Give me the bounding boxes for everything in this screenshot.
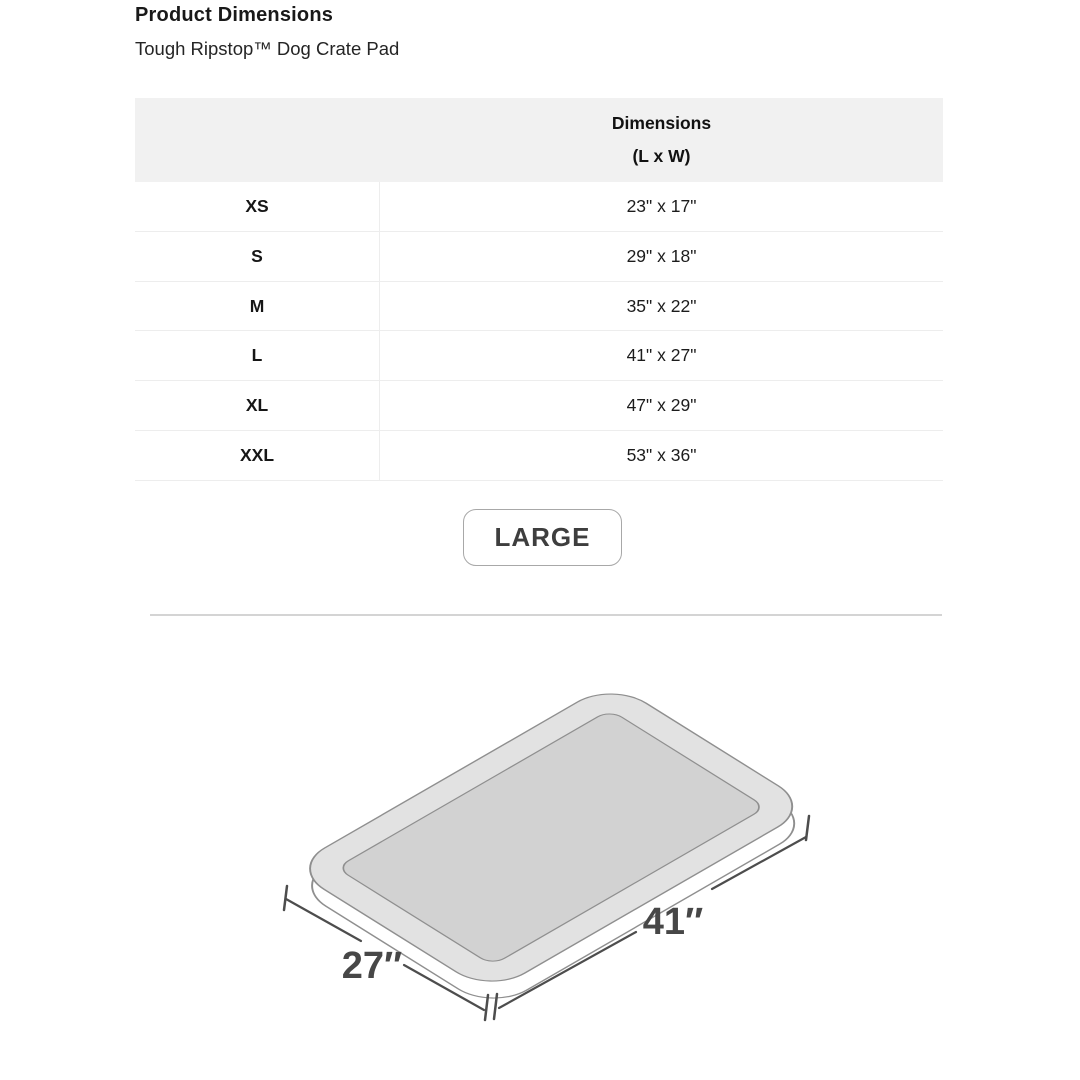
dimensions-cell: 53" x 36" (380, 431, 943, 480)
dimensions-cell: 47" x 29" (380, 381, 943, 430)
product-dimensions-page: Product Dimensions Tough Ripstop™ Dog Cr… (0, 0, 1080, 1080)
dimensions-cell: 35" x 22" (380, 282, 943, 331)
size-cell: M (135, 282, 380, 331)
dimensions-cell: 29" x 18" (380, 232, 943, 281)
dimensions-column-header: Dimensions (L x W) (380, 98, 943, 182)
page-title: Product Dimensions (135, 4, 333, 27)
crate-pad-diagram: 27″ 41″ (0, 640, 1080, 1080)
size-cell: XXL (135, 431, 380, 480)
table-row: S29" x 18" (135, 232, 943, 282)
size-cell: L (135, 331, 380, 380)
size-cell: S (135, 232, 380, 281)
table-row: L41" x 27" (135, 331, 943, 381)
dimensions-cell: 41" x 27" (380, 331, 943, 380)
section-divider (150, 614, 942, 616)
size-cell: XS (135, 182, 380, 231)
dimensions-header-line2: (L x W) (632, 140, 690, 173)
size-column-header (135, 98, 380, 182)
width-start-tick (284, 886, 287, 910)
dimensions-cell: 23" x 17" (380, 182, 943, 231)
selected-size-button[interactable]: LARGE (463, 509, 622, 566)
length-dimension-label: 41″ (643, 901, 703, 943)
table-body: XS23" x 17"S29" x 18"M35" x 22"L41" x 27… (135, 182, 943, 481)
dimensions-header-line1: Dimensions (612, 107, 711, 140)
table-header-row: Dimensions (L x W) (135, 98, 943, 182)
product-name: Tough Ripstop™ Dog Crate Pad (135, 38, 399, 60)
table-row: XS23" x 17" (135, 182, 943, 232)
size-chart-table: Dimensions (L x W) XS23" x 17"S29" x 18"… (135, 98, 943, 481)
length-end-tick (806, 816, 809, 840)
size-cell: XL (135, 381, 380, 430)
table-row: XXL53" x 36" (135, 431, 943, 481)
width-end-tick (485, 995, 488, 1020)
table-row: M35" x 22" (135, 282, 943, 332)
table-row: XL47" x 29" (135, 381, 943, 431)
width-dimension-label: 27″ (342, 945, 402, 987)
